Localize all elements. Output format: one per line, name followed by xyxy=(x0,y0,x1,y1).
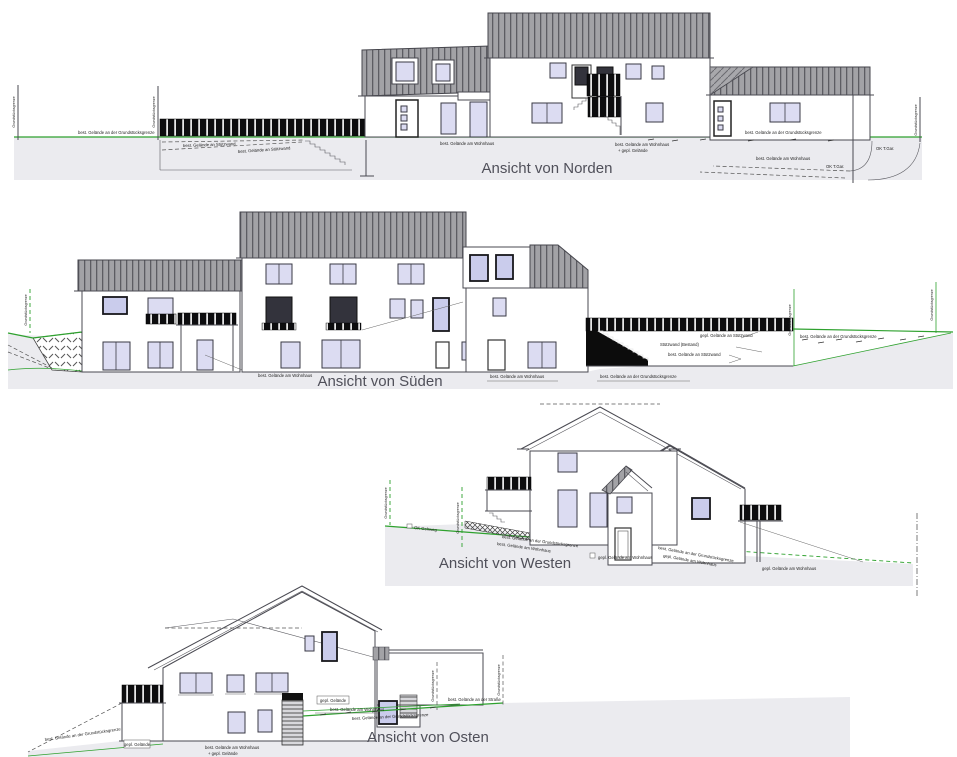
building-sueden-main xyxy=(236,212,471,372)
view-title-westen: Ansicht von Westen xyxy=(439,555,571,572)
door xyxy=(488,340,505,370)
window xyxy=(617,497,632,513)
building-sueden-left-wing xyxy=(74,260,247,372)
roof-band xyxy=(373,647,389,660)
balcony-railing xyxy=(587,74,620,96)
elevations-svg: Grundstücksgrenze Grundstücksgrenze Grun… xyxy=(0,0,957,757)
window xyxy=(692,498,710,519)
window xyxy=(305,636,314,651)
terrain-label: gepl. Gelände an Stützwand xyxy=(700,333,753,338)
terrain-label: best. Gelände an der Grundstücksgrenze xyxy=(44,726,121,742)
boundary-label: Grundstücksgrenze xyxy=(788,304,792,335)
view-westen: Grundstücksgrenze Grundstücksgrenze xyxy=(384,404,917,598)
terrain-label: + gepl. Gelände xyxy=(208,751,238,756)
elevation-sheet: Grundstücksgrenze Grundstücksgrenze Grun… xyxy=(0,0,957,757)
window xyxy=(228,712,245,733)
terrain-label: best. Gelände am Wohnhaus xyxy=(258,373,312,378)
terrain-label: best. Gelände am Wohnhaus xyxy=(490,374,544,379)
terrain-label: best. Gelände an der Straße xyxy=(448,697,502,702)
balcony-east xyxy=(119,685,166,741)
terrain-label: best. Gelände an der Grundstücksgrenze xyxy=(78,130,155,135)
boundary-label: Grundstücksgrenze xyxy=(456,502,460,533)
balcony-railing xyxy=(178,313,236,325)
view-sueden: Grundstücksgrenze xyxy=(8,212,953,390)
balcony-railing xyxy=(326,323,361,330)
window xyxy=(330,297,357,325)
terrain-label: best. Gelände am Wohnhaus xyxy=(756,156,810,161)
window xyxy=(550,63,566,78)
boundary-label: Grundstücksgrenze xyxy=(914,104,918,135)
roof xyxy=(240,212,466,258)
ground-fill-osten xyxy=(28,697,850,757)
roof xyxy=(362,46,490,96)
terrain-label: best. Gelände am Wohnhaus xyxy=(440,141,494,146)
stairs xyxy=(489,513,505,522)
window xyxy=(493,298,506,316)
terrain-label: + gepl. Gelände xyxy=(618,148,648,153)
window xyxy=(281,342,300,368)
window xyxy=(258,710,272,732)
window xyxy=(379,701,397,724)
balcony-railing xyxy=(262,323,296,330)
terrain-label: best. Gelände an der Grundstücksgrenze xyxy=(800,334,877,339)
window xyxy=(103,342,130,370)
window xyxy=(496,255,513,279)
window xyxy=(103,297,127,314)
terrain-label: best. Gelände an Stützwand xyxy=(668,352,721,357)
house-east-gable xyxy=(148,586,382,745)
view-title-sueden: Ansicht von Süden xyxy=(317,373,442,390)
terrain-label: best. Gelände am Wohnhaus xyxy=(330,707,384,712)
building-sueden-right xyxy=(463,245,588,372)
window xyxy=(227,675,244,692)
window xyxy=(652,66,664,79)
exterior-stairs xyxy=(282,700,303,745)
balcony-railing xyxy=(146,314,176,324)
balcony-door xyxy=(575,67,588,85)
terrain-label: best. Gelände am Wohnhaus xyxy=(615,142,669,147)
balcony-railing xyxy=(487,477,531,490)
roof xyxy=(488,13,710,58)
balcony-railing xyxy=(588,97,621,117)
window xyxy=(266,297,292,325)
terrain-label: gepl. Gelände am Wohnhaus xyxy=(762,566,816,571)
building-main xyxy=(484,13,714,137)
balcony-railing xyxy=(122,685,163,703)
terrain-label: best. Gelände an der Grundstücksgrenze xyxy=(745,130,822,135)
terrain-label: gepl. Gelände am Wohnhaus xyxy=(598,555,652,560)
window xyxy=(626,64,641,79)
window xyxy=(590,493,607,527)
view-title-osten: Ansicht von Osten xyxy=(367,729,489,746)
view-title-norden: Ansicht von Norden xyxy=(482,160,613,177)
level-label: OK T.Gar. xyxy=(826,164,844,169)
view-norden: Grundstücksgrenze Grundstücksgrenze Grun… xyxy=(12,13,922,183)
view-osten: Grundstücksgrenze Grundstücksgrenze gepl… xyxy=(28,586,850,757)
door xyxy=(436,342,449,368)
window xyxy=(436,64,450,81)
french-door xyxy=(470,102,487,137)
window xyxy=(470,255,488,281)
window xyxy=(433,298,449,331)
terrain-label: best. Gelände an der Grundstücksgrenze xyxy=(600,374,677,379)
boundary-label: Grundstücksgrenze xyxy=(384,487,388,518)
window xyxy=(322,632,337,661)
balcony-west-right xyxy=(738,505,863,562)
window xyxy=(558,490,577,527)
balcony-west-left xyxy=(485,477,532,522)
terrain-label: gepl. Gelände xyxy=(124,742,151,747)
window xyxy=(390,299,405,318)
wall xyxy=(466,288,588,372)
roof xyxy=(530,245,588,290)
window xyxy=(646,103,663,122)
boundary-label: Grundstücksgrenze xyxy=(431,670,435,701)
terrain-label: gepl. Gelände xyxy=(320,698,347,703)
window xyxy=(411,300,423,318)
boundary-label: Grundstücksgrenze xyxy=(497,664,501,695)
window xyxy=(396,62,414,81)
terrain-label: Stützwand (Bestand) xyxy=(660,342,699,347)
boundary-label: Grundstücksgrenze xyxy=(930,289,934,320)
stair-rail xyxy=(282,693,303,700)
terrain-label: best. Gelände am Wohnhaus xyxy=(205,745,259,750)
roof xyxy=(78,260,242,291)
window xyxy=(148,342,173,368)
level-label: OK T.Gar. xyxy=(876,146,894,151)
boundary-label: Grundstücksgrenze xyxy=(12,96,16,127)
boundary-label: Grundstücksgrenze xyxy=(24,294,28,325)
window xyxy=(148,298,173,315)
boundary-label: Grundstücksgrenze xyxy=(152,96,156,127)
balcony-railing xyxy=(740,505,781,520)
window xyxy=(441,103,456,134)
window xyxy=(558,453,577,472)
